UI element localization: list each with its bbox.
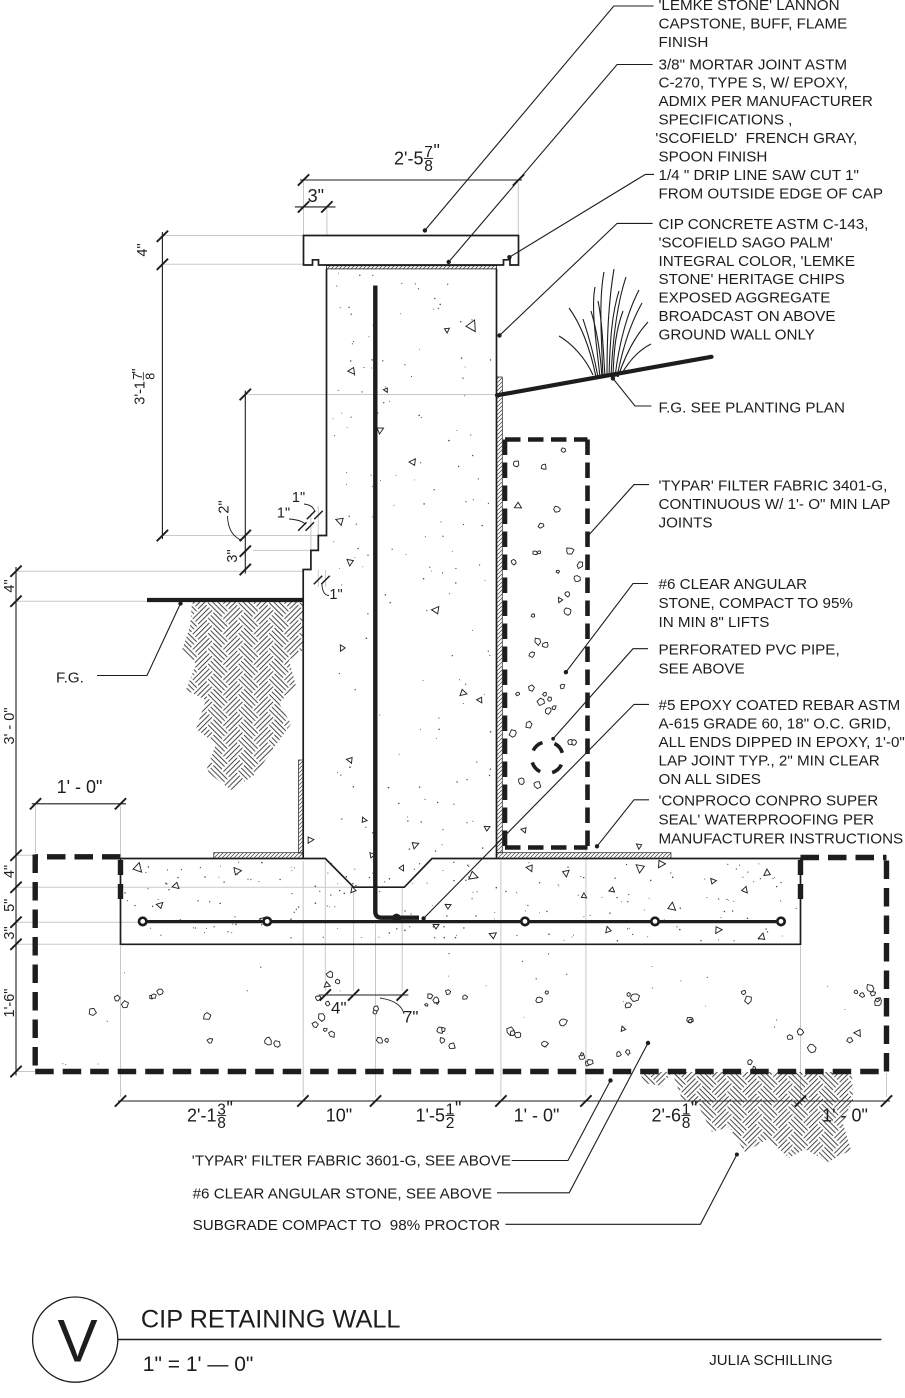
svg-text:JULIA SCHILLING: JULIA SCHILLING	[709, 1352, 832, 1369]
svg-text:10": 10"	[326, 1106, 352, 1126]
svg-text:ADMIX PER MANUFACTURER: ADMIX PER MANUFACTURER	[659, 93, 873, 110]
svg-text:A-615 GRADE 60, 18" O.C. GRID,: A-615 GRADE 60, 18" O.C. GRID,	[659, 716, 891, 733]
svg-text:2'-5: 2'-5	[394, 148, 423, 168]
svg-text:ALL ENDS DIPPED IN EPOXY, 1'-0: ALL ENDS DIPPED IN EPOXY, 1'-0"	[659, 734, 905, 751]
svg-text:F.G. SEE PLANTING PLAN: F.G. SEE PLANTING PLAN	[659, 400, 846, 417]
svg-text:8: 8	[217, 1115, 226, 1132]
svg-text:1' - 0": 1' - 0"	[822, 1106, 868, 1126]
svg-text:#5 EPOXY COATED REBAR ASTM: #5 EPOXY COATED REBAR ASTM	[659, 697, 901, 714]
svg-text:2: 2	[446, 1115, 455, 1132]
svg-text:'TYPAR' FILTER FABRIC 3401-G,: 'TYPAR' FILTER FABRIC 3401-G,	[659, 477, 888, 494]
svg-text:FROM OUTSIDE EDGE OF CAP: FROM OUTSIDE EDGE OF CAP	[659, 185, 883, 202]
svg-text:C-270, TYPE S, W/ EPOXY,: C-270, TYPE S, W/ EPOXY,	[659, 75, 848, 92]
svg-text:INTEGRAL COLOR, 'LEMKE: INTEGRAL COLOR, 'LEMKE	[659, 253, 855, 270]
svg-text:SEAL' WATERPROOFING PER: SEAL' WATERPROOFING PER	[659, 811, 875, 828]
svg-text:#6 CLEAR ANGULAR: #6 CLEAR ANGULAR	[659, 576, 808, 593]
svg-text:8: 8	[682, 1115, 691, 1132]
svg-text:'SCOFIELD SAGO PALM': 'SCOFIELD SAGO PALM'	[659, 234, 833, 251]
svg-text:": "	[130, 368, 146, 373]
svg-text:SEE ABOVE: SEE ABOVE	[659, 660, 745, 677]
svg-text:8: 8	[424, 158, 433, 175]
svg-text:2'-6: 2'-6	[652, 1106, 681, 1126]
svg-text:3/8" MORTAR JOINT ASTM: 3/8" MORTAR JOINT ASTM	[659, 56, 848, 73]
svg-text:STONE, COMPACT TO 95%: STONE, COMPACT TO 95%	[659, 595, 853, 612]
svg-text:5": 5"	[2, 899, 18, 912]
svg-text:4": 4"	[2, 579, 18, 592]
svg-text:3": 3"	[225, 549, 241, 562]
svg-text:CAPSTONE, BUFF, FLAME: CAPSTONE, BUFF, FLAME	[659, 16, 848, 33]
svg-text:EXPOSED AGGREGATE: EXPOSED AGGREGATE	[659, 290, 831, 307]
svg-text:F.G.: F.G.	[56, 669, 84, 686]
svg-text:SUBGRADE COMPACT TO 98% PROCT: SUBGRADE COMPACT TO 98% PROCTOR	[193, 1217, 501, 1234]
svg-text:IN MIN 8" LIFTS: IN MIN 8" LIFTS	[659, 614, 770, 631]
svg-text:3' - 0": 3' - 0"	[2, 708, 18, 745]
svg-text:4": 4"	[331, 998, 347, 1017]
svg-text:BROADCAST ON ABOVE: BROADCAST ON ABOVE	[659, 308, 836, 325]
svg-text:CONTINUOUS W/ 1'- O" MIN LAP: CONTINUOUS W/ 1'- O" MIN LAP	[659, 496, 891, 513]
svg-text:1" = 1' — 0": 1" = 1' — 0"	[143, 1353, 254, 1376]
svg-text:PERFORATED PVC PIPE,: PERFORATED PVC PIPE,	[659, 641, 840, 658]
svg-text:1": 1"	[292, 490, 305, 506]
svg-text:4": 4"	[135, 243, 151, 256]
svg-text:1": 1"	[277, 506, 290, 522]
svg-text:7": 7"	[403, 1008, 419, 1027]
svg-text:": "	[455, 1098, 461, 1118]
svg-text:": "	[691, 1098, 697, 1118]
svg-text:V: V	[57, 1308, 97, 1375]
svg-text:JOINTS: JOINTS	[659, 515, 713, 532]
svg-text:FINISH: FINISH	[659, 34, 709, 51]
svg-text:4": 4"	[2, 865, 18, 878]
svg-text:'TYPAR' FILTER FABRIC 3601-G,: 'TYPAR' FILTER FABRIC 3601-G, SEE ABOVE	[192, 1153, 511, 1170]
svg-text:1'-6": 1'-6"	[2, 989, 18, 1018]
svg-text:1": 1"	[329, 587, 342, 603]
svg-text:1' - 0": 1' - 0"	[57, 777, 103, 797]
svg-text:LAP JOINT TYP., 2" MIN CLEAR: LAP JOINT TYP., 2" MIN CLEAR	[659, 753, 880, 770]
svg-text:1'-5: 1'-5	[416, 1106, 445, 1126]
svg-text:2": 2"	[217, 500, 233, 513]
svg-text:CIP CONCRETE ASTM C-143,: CIP CONCRETE ASTM C-143,	[659, 216, 869, 233]
svg-text:'SCOFIELD' FRENCH GRAY,: 'SCOFIELD' FRENCH GRAY,	[655, 130, 857, 147]
svg-text:#6 CLEAR ANGULAR STONE, SEE AB: #6 CLEAR ANGULAR STONE, SEE ABOVE	[193, 1185, 492, 1202]
svg-text:SPOON FINISH: SPOON FINISH	[659, 148, 768, 165]
svg-text:ON ALL SIDES: ON ALL SIDES	[659, 771, 761, 788]
svg-text:": "	[434, 141, 440, 161]
svg-text:'LEMKE STONE' LANNON: 'LEMKE STONE' LANNON	[659, 0, 840, 14]
svg-text:1/4 " DRIP LINE SAW CUT 1": 1/4 " DRIP LINE SAW CUT 1"	[659, 167, 859, 184]
svg-text:CIP RETAINING WALL: CIP RETAINING WALL	[141, 1305, 401, 1333]
svg-text:3'-1: 3'-1	[133, 381, 149, 405]
svg-text:2'-1: 2'-1	[187, 1106, 216, 1126]
svg-text:3": 3"	[2, 926, 18, 939]
svg-text:": "	[227, 1098, 233, 1118]
svg-text:3": 3"	[308, 186, 324, 206]
svg-text:1' - 0": 1' - 0"	[514, 1106, 560, 1126]
svg-text:'CONPROCO CONPRO SUPER: 'CONPROCO CONPRO SUPER	[659, 793, 879, 810]
svg-text:STONE' HERITAGE CHIPS: STONE' HERITAGE CHIPS	[659, 271, 845, 288]
svg-text:GROUND WALL ONLY: GROUND WALL ONLY	[659, 326, 815, 343]
svg-text:MANUFACTURER INSTRUCTIONS: MANUFACTURER INSTRUCTIONS	[659, 830, 904, 847]
svg-text:SPECIFICATIONS ,: SPECIFICATIONS ,	[659, 112, 793, 129]
